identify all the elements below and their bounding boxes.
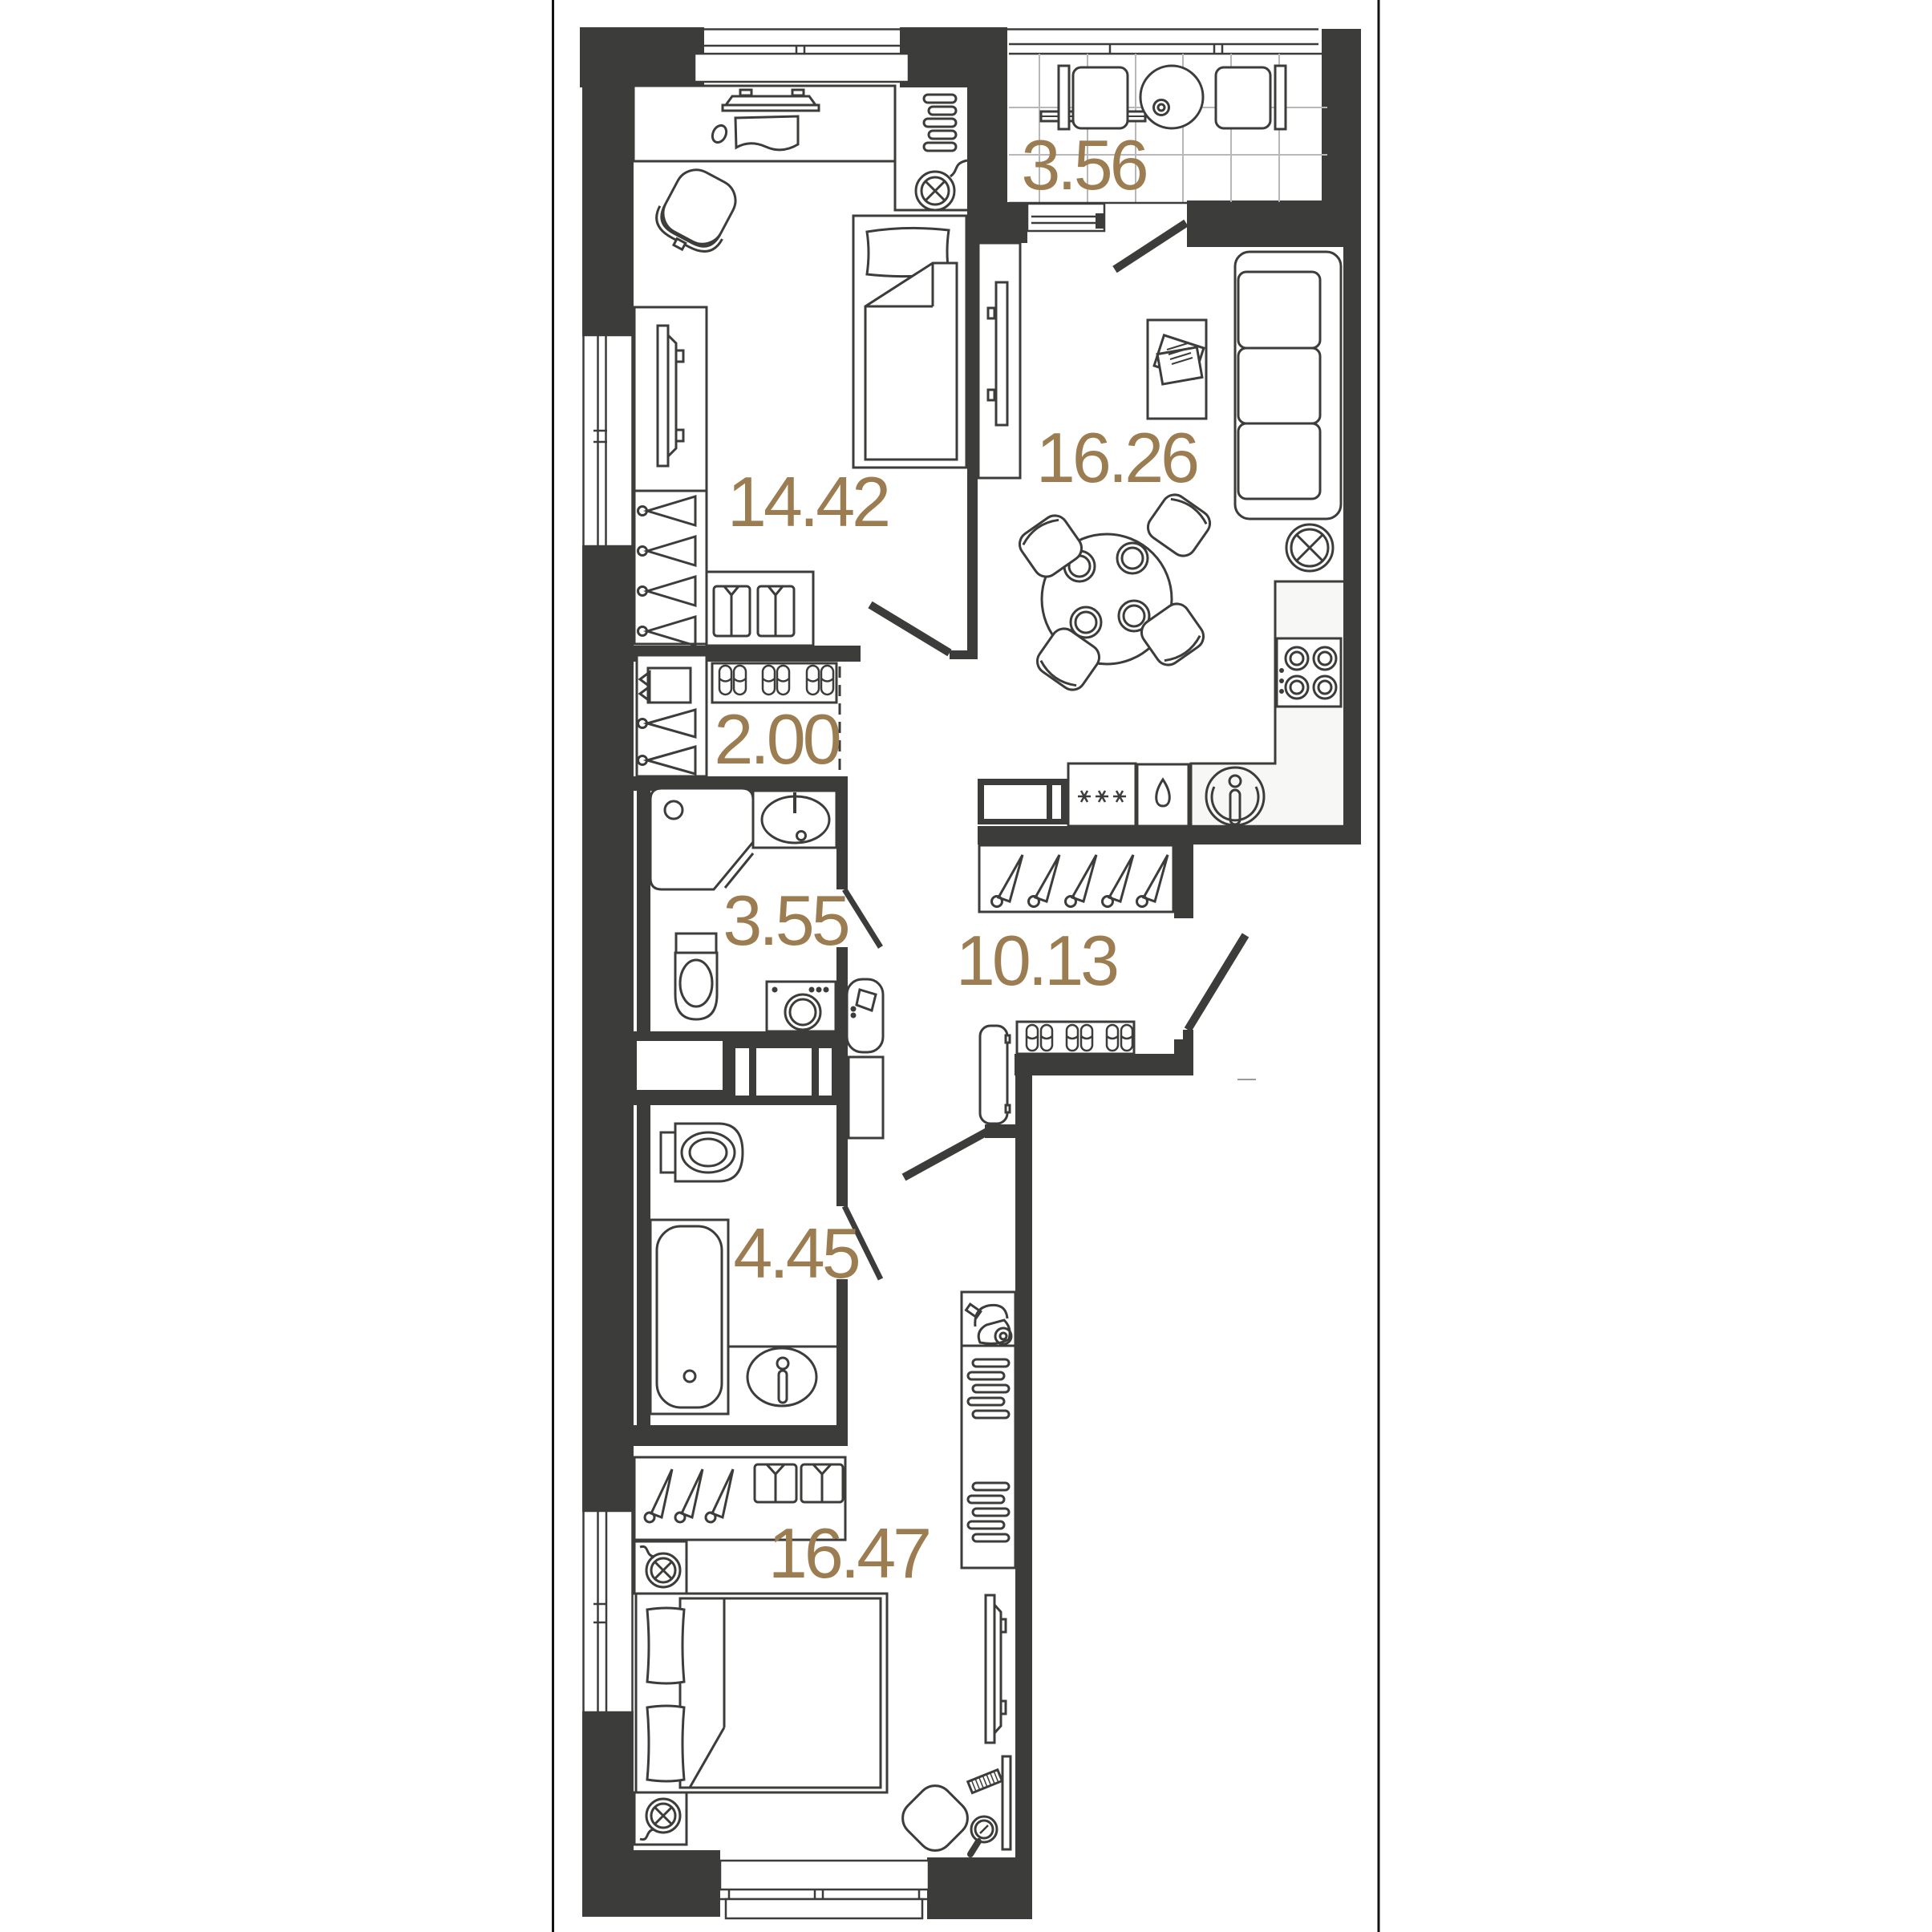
- svg-text:16.26: 16.26: [1036, 418, 1197, 497]
- svg-text:16.47: 16.47: [768, 1513, 929, 1593]
- svg-text:10.13: 10.13: [956, 921, 1117, 1000]
- svg-text:14.42: 14.42: [727, 462, 888, 541]
- svg-text:3.56: 3.56: [1021, 125, 1146, 205]
- svg-text:3.55: 3.55: [723, 881, 848, 960]
- svg-text:2.00: 2.00: [714, 699, 839, 779]
- svg-text:4.45: 4.45: [733, 1213, 858, 1293]
